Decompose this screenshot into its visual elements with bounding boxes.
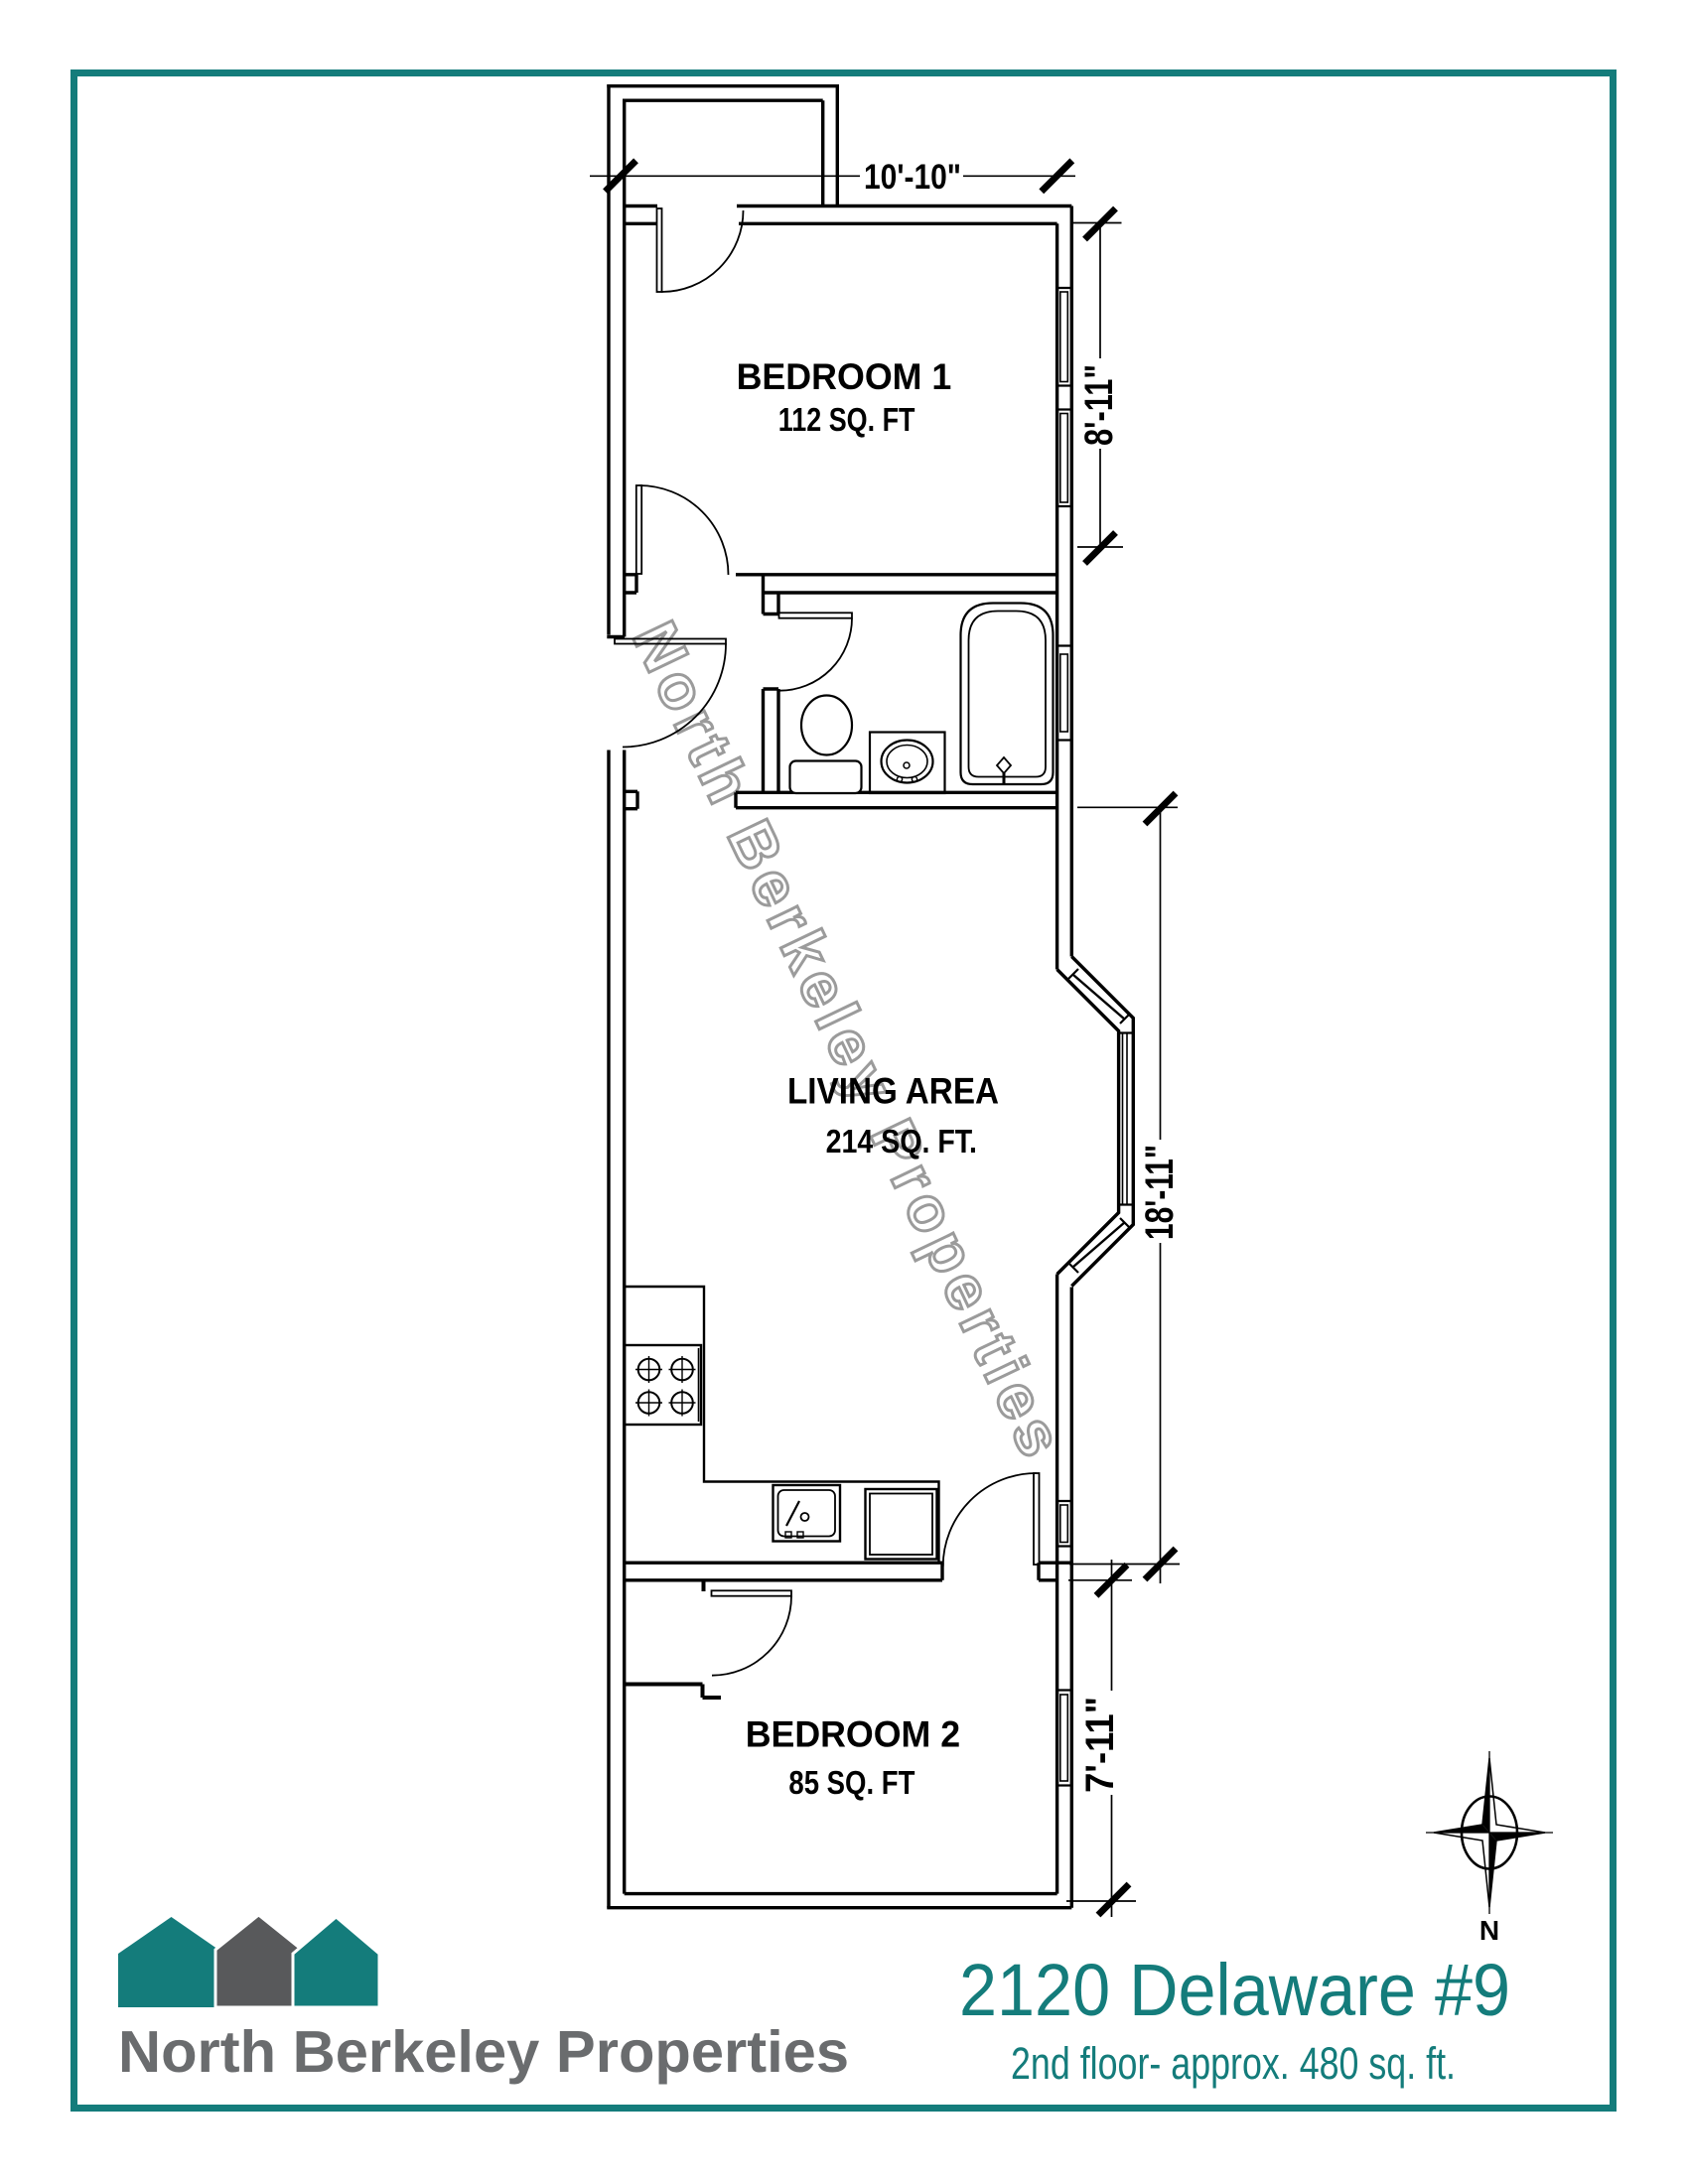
svg-text:7'-11": 7'-11" — [1078, 1697, 1122, 1793]
svg-text:8'-11": 8'-11" — [1077, 364, 1121, 446]
svg-text:LIVING AREA: LIVING AREA — [787, 1071, 999, 1112]
svg-text:18'-11": 18'-11" — [1138, 1145, 1182, 1240]
svg-text:214 SQ. FT.: 214 SQ. FT. — [826, 1123, 977, 1160]
svg-text:North Berkeley Properties: North Berkeley Properties — [118, 2019, 849, 2085]
svg-text:85 SQ. FT: 85 SQ. FT — [788, 1764, 914, 1801]
svg-text:N: N — [1479, 1915, 1499, 1946]
svg-text:112 SQ. FT: 112 SQ. FT — [778, 401, 915, 438]
svg-text:10'-10": 10'-10" — [864, 158, 961, 197]
svg-text:BEDROOM 2: BEDROOM 2 — [746, 1714, 960, 1755]
svg-text:2120 Delaware #9: 2120 Delaware #9 — [959, 1949, 1510, 2031]
svg-text:2nd floor- approx. 480 sq. ft.: 2nd floor- approx. 480 sq. ft. — [1011, 2038, 1456, 2089]
svg-text:BEDROOM 1: BEDROOM 1 — [737, 356, 952, 397]
